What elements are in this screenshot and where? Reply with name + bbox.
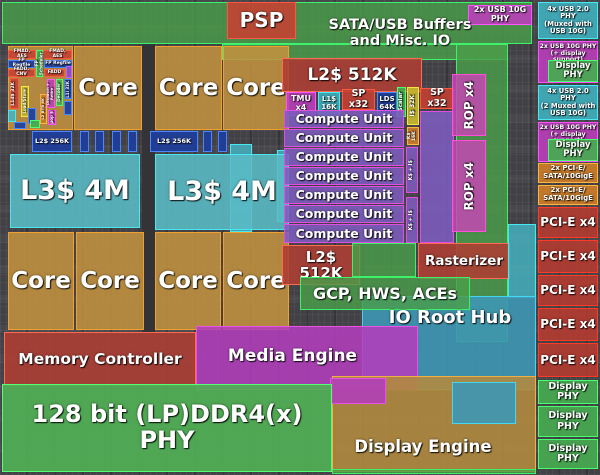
rop-x4-label: ROP x4 bbox=[463, 162, 476, 211]
io-root-hub-arm bbox=[508, 224, 536, 298]
core-label: Core bbox=[226, 269, 286, 294]
sp-x32: SP x32 bbox=[420, 88, 454, 109]
sp-x32-label: SP x32 bbox=[343, 89, 374, 110]
display-phy-label: Display PHY bbox=[549, 62, 597, 80]
compute-unit: Compute Unit bbox=[284, 148, 404, 166]
media-engine-label-label: Media Engine bbox=[228, 347, 357, 365]
scalar-label: Scalar bbox=[399, 92, 405, 111]
chip-filler bbox=[8, 110, 16, 122]
display-phy: Display PHY bbox=[538, 406, 598, 437]
sp-x32-label: SP x32 bbox=[421, 88, 453, 109]
decoder-label: Decoder bbox=[57, 83, 61, 102]
sata-usb-label-label: SATA/USB Buffers and Misc. IO bbox=[329, 18, 472, 49]
display-phy-label: Display PHY bbox=[539, 411, 597, 432]
psp-label: PSP bbox=[240, 10, 284, 32]
l2-256k-label: L2$ 256K bbox=[35, 138, 69, 145]
compute-unit: Compute Unit bbox=[284, 110, 404, 128]
ddr-phy-label: 128 bit (LP)DDR4(x) PHY bbox=[3, 402, 331, 454]
core: Core bbox=[223, 232, 289, 330]
k-16k: K$ 16K bbox=[407, 127, 419, 145]
chip-filler bbox=[64, 101, 72, 115]
ddr-phy: 128 bit (LP)DDR4(x) PHY bbox=[2, 384, 332, 472]
compute-unit: Compute Unit bbox=[284, 129, 404, 147]
pcie-sata-10gige: 2x PCI-E/ SATA/10GigE bbox=[538, 163, 598, 183]
compute-unit-label: Compute Unit bbox=[296, 227, 393, 241]
rop-x4: ROP x4 bbox=[452, 140, 486, 232]
compute-unit-label: Compute Unit bbox=[296, 207, 393, 221]
l2-256k-label: L2$ 256K bbox=[157, 138, 191, 145]
usb2-phy-label: 4x USB 2.0 PHY (Muxed with USB 10G) bbox=[539, 6, 597, 35]
core: Core bbox=[8, 232, 74, 330]
usb2-phy: 4x USB 2.0 PHY (2 Muxed with USB 10G) bbox=[538, 85, 598, 120]
core: Core bbox=[76, 232, 144, 330]
rop-x4-label: ROP x4 bbox=[463, 81, 476, 130]
k-16k-label: K$ 16K bbox=[408, 128, 418, 144]
display-phy: Display PHY bbox=[548, 139, 598, 161]
fmad-aes: FMAD, AES bbox=[43, 50, 72, 59]
core: Core bbox=[155, 232, 221, 330]
i-32k: I$ 32K bbox=[407, 87, 419, 125]
compute-unit: Compute Unit bbox=[284, 224, 404, 243]
core: Core bbox=[155, 46, 222, 130]
sp-x32: SP x32 bbox=[342, 89, 375, 110]
display-phy: Display PHY bbox=[538, 439, 598, 469]
l1i-32k-label: L1i 32K bbox=[66, 81, 70, 98]
uop-cache: µop $ bbox=[48, 110, 56, 125]
fadd-cnv: FADD, CNV bbox=[8, 69, 35, 77]
fadd-cnv-label: FADD, CNV bbox=[9, 68, 34, 78]
green-bottom-strip bbox=[332, 469, 536, 474]
memory-controller-label: Memory Controller bbox=[18, 351, 181, 368]
pcie-x4-label: PCI-E x4 bbox=[540, 250, 596, 263]
core-label: Core bbox=[11, 269, 71, 294]
pcie-x4-label: PCI-E x4 bbox=[540, 354, 596, 367]
l1d-32k-label: L1d$ 32K bbox=[12, 82, 17, 106]
display-phy-label: Display PHY bbox=[549, 141, 597, 159]
core: Core bbox=[223, 46, 289, 130]
l3-4m-label: L3$ 4M bbox=[20, 176, 130, 205]
pcie-sata-10gige: 2x PCI-E/ SATA/10GigE bbox=[538, 185, 598, 205]
ks-is-label: K$ + I$ bbox=[409, 210, 414, 230]
gcp-step bbox=[352, 243, 416, 277]
uop-cache-label: µop $ bbox=[50, 111, 54, 124]
display-phy: Display PHY bbox=[548, 60, 598, 82]
display-phy-label: Display PHY bbox=[539, 382, 597, 403]
display-phy: Display PHY bbox=[538, 380, 598, 404]
compute-unit: Compute Unit bbox=[284, 186, 404, 204]
chip-filler bbox=[30, 120, 40, 128]
pcie-x4: PCI-E x4 bbox=[538, 275, 598, 306]
compute-unit: Compute Unit bbox=[284, 205, 404, 223]
gcp-hws-aces-label: GCP, HWS, ACEs bbox=[313, 285, 457, 302]
pcie-x4: PCI-E x4 bbox=[538, 207, 598, 238]
l3-4m: L3$ 4M bbox=[10, 154, 140, 228]
annotated-die-shot: CoreCoreCoreL2$ 256KL2$ 256KL3$ 4ML3$ 4M… bbox=[0, 0, 600, 475]
compute-unit-label: Compute Unit bbox=[296, 131, 393, 145]
fmad-aes-label: FMAD, AES bbox=[44, 50, 71, 60]
display-engine-label-label: Display Engine bbox=[354, 438, 491, 456]
dispatch-retire: Dispatch + Retire bbox=[47, 79, 55, 108]
compute-unit-label: Compute Unit bbox=[296, 188, 393, 202]
decoder: Decoder bbox=[56, 79, 63, 106]
psp: PSP bbox=[227, 2, 296, 39]
l2-strip bbox=[80, 131, 89, 152]
core-label: Core bbox=[80, 269, 140, 294]
pcie-x4-label: PCI-E x4 bbox=[540, 284, 596, 297]
l2-strip bbox=[218, 131, 227, 152]
pcie-sata-10gige-label: 2x PCI-E/ SATA/10GigE bbox=[543, 187, 593, 202]
pcie-x4-label: PCI-E x4 bbox=[540, 318, 596, 331]
l1d-32k: L1d$ 32K bbox=[10, 78, 19, 109]
rop-x4: ROP x4 bbox=[452, 74, 486, 136]
display-engine-label: Display Engine bbox=[348, 434, 498, 460]
l2-strip bbox=[112, 131, 121, 152]
pcie-x4: PCI-E x4 bbox=[538, 308, 598, 341]
fadd-label: FADD bbox=[48, 71, 62, 76]
l2-strip bbox=[95, 131, 104, 152]
sata-usb-label: SATA/USB Buffers and Misc. IO bbox=[322, 16, 478, 52]
cu-column bbox=[420, 111, 454, 243]
chip-filler bbox=[66, 66, 72, 78]
ks-is: K$ + I$ bbox=[406, 197, 418, 243]
rasterizer: Rasterizer bbox=[418, 243, 510, 279]
compute-unit-label: Compute Unit bbox=[296, 112, 393, 126]
pcie-x4: PCI-E x4 bbox=[538, 343, 598, 377]
usb2-phy-label: 4x USB 2.0 PHY (2 Muxed with USB 10G) bbox=[539, 88, 597, 117]
l2-256k: L2$ 256K bbox=[32, 131, 72, 152]
ks-is: K$ + I$ bbox=[406, 147, 418, 193]
l3-4m-label: L3$ 4M bbox=[167, 177, 277, 206]
l1i-32k: L1i 32K bbox=[64, 79, 72, 99]
rasterizer-label: Rasterizer bbox=[425, 254, 503, 269]
io-root-hub-label: IO Root Hub bbox=[370, 304, 530, 332]
core-label: Core bbox=[158, 269, 218, 294]
l2-256k: L2$ 256K bbox=[150, 131, 198, 152]
fp-scheduler: FP Scheduler bbox=[36, 50, 43, 77]
pcie-x4: PCI-E x4 bbox=[538, 240, 598, 273]
display-phy-label: Display PHY bbox=[539, 444, 597, 465]
load-store-label: Load/Store bbox=[23, 89, 27, 114]
l3-4m: L3$ 4M bbox=[155, 154, 289, 230]
compute-unit: Compute Unit bbox=[284, 167, 404, 185]
usb2-phy: 4x USB 2.0 PHY (Muxed with USB 10G) bbox=[538, 2, 598, 39]
media-engine-label: Media Engine bbox=[205, 342, 380, 370]
fp-scheduler-label: FP Scheduler bbox=[35, 51, 44, 76]
ks-is-label: K$ + I$ bbox=[409, 160, 414, 180]
core-label: Core bbox=[159, 76, 219, 101]
dispatch-retire-label: Dispatch + Retire bbox=[47, 80, 55, 107]
gpu-l2-512k-label: L2$ 512K bbox=[307, 66, 396, 84]
compute-unit-label: Compute Unit bbox=[296, 150, 393, 164]
fadd: FADD bbox=[44, 69, 65, 77]
chip-filler bbox=[14, 122, 26, 129]
core: Core bbox=[74, 46, 142, 130]
pcie-x4-label: PCI-E x4 bbox=[540, 216, 596, 229]
memory-controller: Memory Controller bbox=[4, 332, 196, 386]
core-label: Core bbox=[226, 76, 286, 101]
l2-strip bbox=[203, 131, 212, 152]
media-engine-sub bbox=[330, 378, 386, 404]
io-root-hub-sub bbox=[452, 382, 516, 424]
io-root-hub-label-label: IO Root Hub bbox=[389, 308, 512, 327]
l2-strip bbox=[128, 131, 137, 152]
compute-unit-label: Compute Unit bbox=[296, 169, 393, 183]
pcie-sata-10gige-label: 2x PCI-E/ SATA/10GigE bbox=[543, 165, 593, 180]
core-label: Core bbox=[78, 76, 138, 101]
i-32k-label: I$ 32K bbox=[410, 95, 416, 117]
usb10g-top-label: 2x USB 10G PHY bbox=[469, 6, 531, 23]
